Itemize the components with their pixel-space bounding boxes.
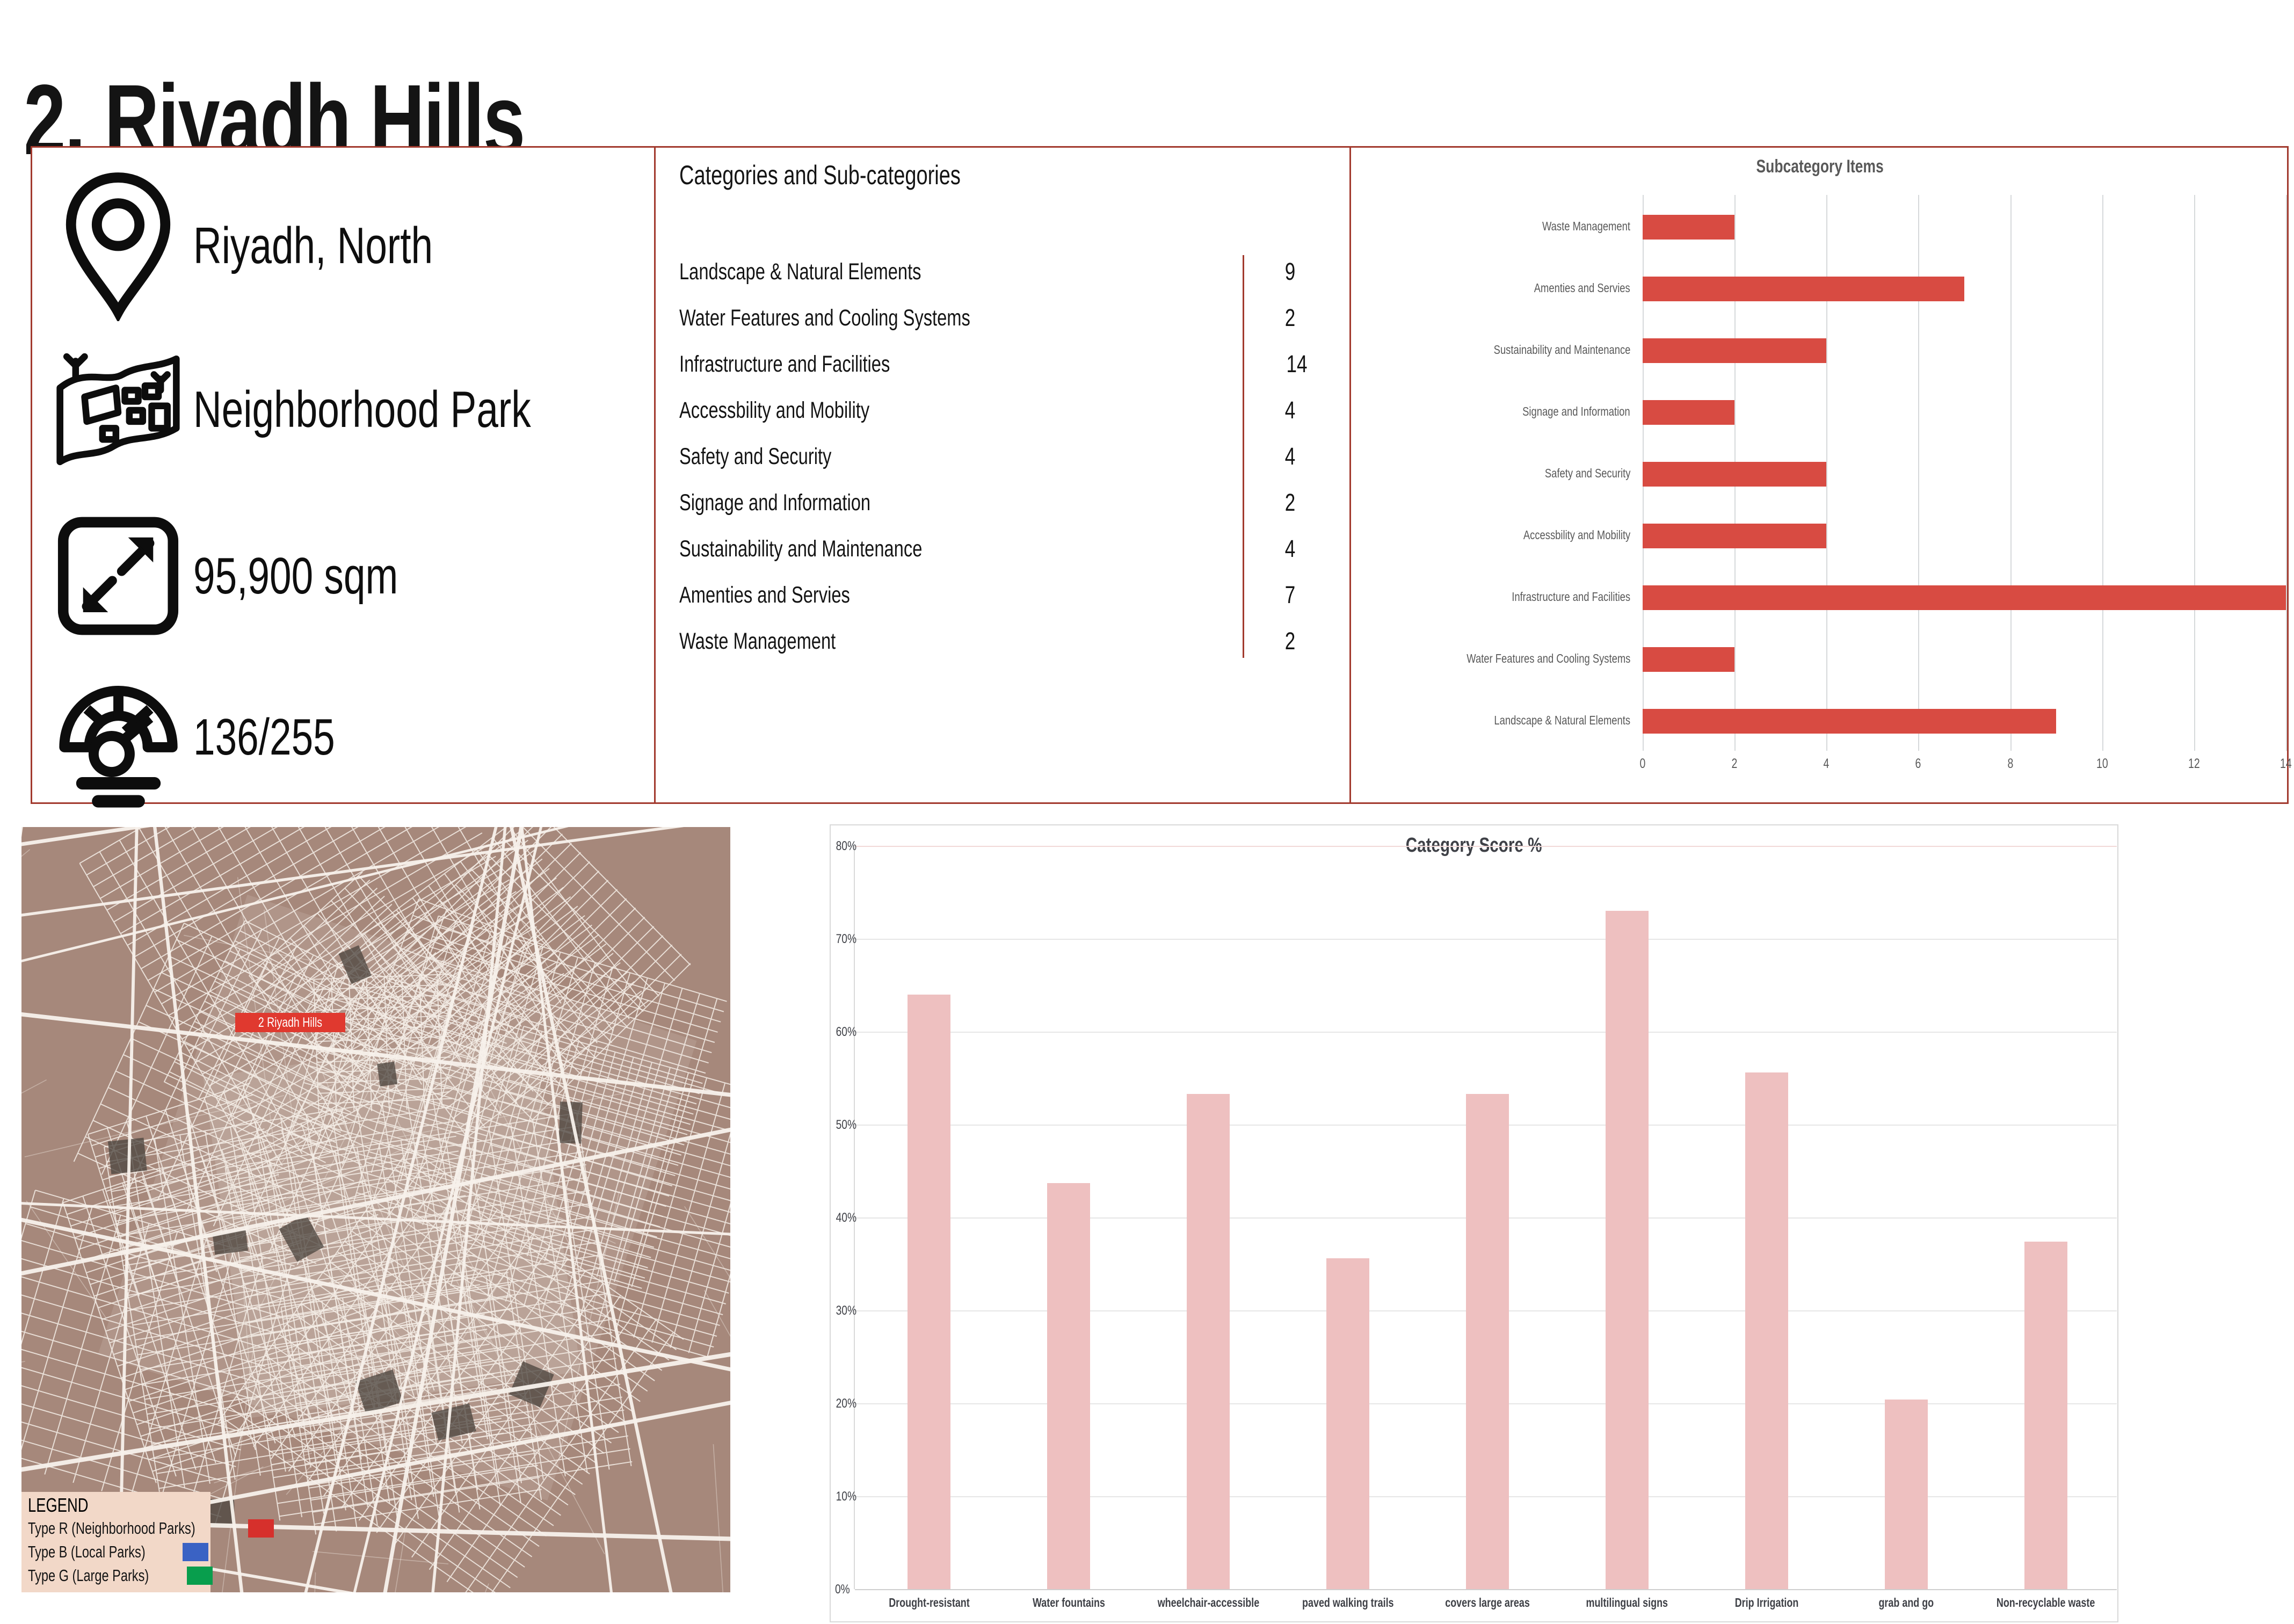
subcategory-x-tick-label-text: 14 bbox=[2280, 756, 2292, 772]
score-gridline bbox=[855, 1589, 2117, 1590]
category-name: Amenties and Servies bbox=[679, 582, 904, 608]
subcategory-bar-label-text: Waste Management bbox=[1542, 219, 1630, 234]
categories-heading: Categories and Sub-categories bbox=[679, 160, 1049, 191]
subcategory-x-tick-label-text: 10 bbox=[2096, 756, 2108, 772]
score-x-label-text: Non-recyclable waste bbox=[1997, 1596, 2095, 1610]
score-bar bbox=[1047, 1183, 1090, 1589]
subcategory-x-tick-label: 6 bbox=[1902, 756, 1934, 772]
category-name: Water Features and Cooling Systems bbox=[679, 305, 1062, 331]
score-bar bbox=[1745, 1072, 1788, 1589]
subcategory-x-tick-label: 10 bbox=[2086, 756, 2118, 772]
riyadh-city-map: 2 Riyadh Hills LEGEND Type R (Neighborho… bbox=[21, 827, 730, 1592]
category-count-text: 2 bbox=[1285, 627, 1296, 655]
map-roads-graphic bbox=[21, 827, 730, 1592]
category-row: Infrastructure and Facilities14 bbox=[679, 341, 1348, 387]
category-count: 7 bbox=[1283, 581, 1297, 609]
location-pin-icon bbox=[43, 171, 193, 321]
category-count-text: 2 bbox=[1285, 489, 1296, 517]
category-name: Waste Management bbox=[679, 628, 885, 655]
subcategory-bar-label: Infrastructure and Facilities bbox=[1351, 590, 1630, 604]
score-y-tick-text: 70% bbox=[836, 932, 856, 947]
subcategory-x-tick-label-text: 0 bbox=[1640, 756, 1646, 772]
category-name-text: Amenties and Servies bbox=[679, 582, 850, 608]
subcategory-bar-label: Landscape & Natural Elements bbox=[1351, 713, 1630, 728]
subcategory-bar-label-text: Infrastructure and Facilities bbox=[1512, 590, 1630, 604]
category-name-text: Accessbility and Mobility bbox=[679, 397, 869, 424]
subcategory-bar bbox=[1643, 709, 2056, 734]
subcategory-bar bbox=[1643, 585, 2286, 610]
score-gridline bbox=[855, 846, 2117, 847]
count-divider bbox=[1243, 255, 1244, 658]
score-x-label-text: Drought-resistant bbox=[889, 1596, 970, 1610]
category-name: Signage and Information bbox=[679, 490, 931, 516]
category-name: Infrastructure and Facilities bbox=[679, 351, 956, 378]
info-row-location: Riyadh, North bbox=[43, 169, 650, 322]
score-x-label: Non-recyclable waste bbox=[1976, 1596, 2116, 1610]
score-y-tick-text: 80% bbox=[836, 839, 856, 854]
legend-label: Type G (Large Parks) bbox=[28, 1566, 187, 1585]
subcategory-bar-label-text: Amenties and Servies bbox=[1534, 281, 1630, 295]
category-count-text: 2 bbox=[1285, 304, 1296, 332]
category-name: Landscape & Natural Elements bbox=[679, 259, 998, 285]
category-row: Waste Management2 bbox=[679, 618, 1348, 664]
subcategory-bar-label-text: Sustainability and Maintenance bbox=[1493, 343, 1630, 357]
info-row-area: 95,900 sqm bbox=[43, 499, 650, 653]
subcategory-gridline bbox=[2102, 195, 2103, 751]
score-x-label: Drip Irrigation bbox=[1697, 1596, 1836, 1610]
category-count: 4 bbox=[1283, 535, 1297, 563]
score-x-label-text: paved walking trails bbox=[1302, 1596, 1394, 1610]
category-count: 9 bbox=[1283, 258, 1297, 286]
score-x-label-text: covers large areas bbox=[1445, 1596, 1530, 1610]
subcategory-gridline bbox=[2010, 195, 2012, 751]
category-name-text: Landscape & Natural Elements bbox=[679, 259, 921, 285]
legend-color-swatch bbox=[183, 1543, 208, 1561]
map-icon bbox=[43, 345, 193, 474]
subcategory-bar-label: Water Features and Cooling Systems bbox=[1351, 651, 1630, 666]
subcategory-bar bbox=[1643, 215, 1734, 240]
score-y-tick-label: 50% bbox=[831, 1118, 850, 1133]
legend-row: Type R (Neighborhood Parks) bbox=[28, 1517, 205, 1540]
category-count-text: 4 bbox=[1285, 443, 1296, 470]
score-x-label-text: multilingual signs bbox=[1586, 1596, 1668, 1610]
subcategory-x-tick-label: 14 bbox=[2270, 756, 2294, 772]
subcategory-x-tick-label-text: 4 bbox=[1824, 756, 1830, 772]
subcategory-bar-label-text: Signage and Information bbox=[1523, 404, 1631, 419]
category-count: 14 bbox=[1283, 350, 1310, 378]
category-count: 2 bbox=[1283, 489, 1297, 517]
score-x-label: grab and go bbox=[1836, 1596, 1976, 1610]
legend-label: Type R (Neighborhood Parks) bbox=[28, 1519, 248, 1538]
legend-color-swatch bbox=[187, 1567, 213, 1585]
legend-label-text: Type B (Local Parks) bbox=[28, 1542, 146, 1562]
info-row-park-type: Neighborhood Park bbox=[43, 333, 650, 486]
category-count-text: 4 bbox=[1285, 396, 1296, 424]
category-name: Sustainability and Maintenance bbox=[679, 536, 999, 562]
park-type-label: Neighborhood Park bbox=[193, 380, 531, 439]
legend-row: Type G (Large Parks) bbox=[28, 1564, 205, 1587]
category-count: 4 bbox=[1283, 443, 1297, 470]
score-gridline bbox=[855, 939, 2117, 940]
score-y-tick-label: 80% bbox=[831, 839, 850, 854]
score-bar bbox=[1466, 1094, 1509, 1589]
gauge-icon bbox=[43, 666, 193, 808]
subcategory-bar-label: Amenties and Servies bbox=[1351, 281, 1630, 295]
score-x-label: covers large areas bbox=[1418, 1596, 1557, 1610]
subcategory-x-tick-label-text: 6 bbox=[1915, 756, 1921, 772]
score-x-label: wheelchair-accessible bbox=[1138, 1596, 1278, 1610]
subcategory-bar-label: Safety and Security bbox=[1351, 466, 1630, 481]
subcategory-bar-label: Signage and Information bbox=[1351, 404, 1630, 419]
summary-panel: Riyadh, North Neighborhood Park bbox=[31, 146, 2289, 804]
subcategory-bar-label-text: Accessbility and Mobility bbox=[1523, 528, 1630, 542]
map-legend: LEGEND Type R (Neighborhood Parks)Type B… bbox=[21, 1492, 210, 1592]
subcategory-gridline bbox=[2286, 195, 2287, 751]
category-name-text: Safety and Security bbox=[679, 444, 831, 470]
subcategory-bar bbox=[1643, 524, 1826, 548]
category-name-text: Water Features and Cooling Systems bbox=[679, 305, 970, 331]
score-x-label-text: Water fountains bbox=[1033, 1596, 1105, 1610]
legend-label: Type B (Local Parks) bbox=[28, 1542, 183, 1562]
score-y-tick-text: 30% bbox=[836, 1303, 856, 1318]
score-x-label-text: grab and go bbox=[1879, 1596, 1934, 1610]
category-count-text: 9 bbox=[1285, 258, 1296, 286]
area-label: 95,900 sqm bbox=[193, 547, 398, 606]
subcategory-bar bbox=[1643, 647, 1734, 672]
subcategory-items-chart: Subcategory Items 02468101214Waste Manag… bbox=[1351, 148, 2289, 802]
score-bar bbox=[1885, 1400, 1928, 1589]
legend-label-text: Type R (Neighborhood Parks) bbox=[28, 1519, 195, 1538]
category-name-text: Infrastructure and Facilities bbox=[679, 351, 890, 378]
score-y-tick-text: 40% bbox=[836, 1210, 856, 1226]
score-bar bbox=[1187, 1094, 1230, 1589]
subcategory-bar-label: Sustainability and Maintenance bbox=[1351, 343, 1630, 357]
score-x-label-text: wheelchair-accessible bbox=[1157, 1596, 1259, 1610]
category-name: Accessbility and Mobility bbox=[679, 397, 930, 424]
score-y-tick-label: 40% bbox=[831, 1210, 850, 1226]
score-y-tick-text: 0% bbox=[835, 1582, 850, 1597]
map-marker-riyadh-hills: 2 Riyadh Hills bbox=[235, 1013, 345, 1032]
category-count: 4 bbox=[1283, 396, 1297, 424]
categories-list: Landscape & Natural Elements9Water Featu… bbox=[679, 249, 1348, 664]
score-y-tick-label: 70% bbox=[831, 932, 850, 947]
score-x-label-text: Drip Irrigation bbox=[1735, 1596, 1799, 1610]
info-row-score: 136/255 bbox=[43, 661, 650, 814]
category-row: Accessbility and Mobility4 bbox=[679, 387, 1348, 433]
score-y-tick-label: 60% bbox=[831, 1025, 850, 1040]
score-bar bbox=[1326, 1258, 1369, 1589]
category-count-text: 7 bbox=[1285, 581, 1296, 609]
category-score-chart: Category Score % 0%10%20%30%40%50%60%70%… bbox=[830, 824, 2118, 1622]
subcategory-bar-label: Accessbility and Mobility bbox=[1351, 528, 1630, 542]
subcategory-bar bbox=[1643, 277, 1964, 301]
score-x-label: Drought-resistant bbox=[859, 1596, 999, 1610]
category-row: Landscape & Natural Elements9 bbox=[679, 249, 1348, 295]
score-y-tick-label: 20% bbox=[831, 1396, 850, 1411]
subcategory-bar-label-text: Water Features and Cooling Systems bbox=[1467, 651, 1630, 666]
subcategory-chart-plot bbox=[1643, 195, 2286, 751]
score-y-tick-label: 30% bbox=[831, 1303, 850, 1318]
panel-divider-1 bbox=[654, 148, 656, 802]
map-legend-title: LEGEND bbox=[28, 1494, 205, 1517]
subcategory-bar bbox=[1643, 462, 1826, 487]
report-page: { "title": "2. Riyadh Hills", "info_pane… bbox=[0, 0, 2294, 1624]
subcategory-bar bbox=[1643, 400, 1734, 425]
category-row: Safety and Security4 bbox=[679, 433, 1348, 480]
score-x-label: paved walking trails bbox=[1278, 1596, 1418, 1610]
category-row: Signage and Information2 bbox=[679, 480, 1348, 526]
score-gridline bbox=[855, 1032, 2117, 1033]
subcategory-x-tick-label: 0 bbox=[1627, 756, 1659, 772]
category-row: Amenties and Servies7 bbox=[679, 572, 1348, 618]
score-y-tick-text: 50% bbox=[836, 1118, 856, 1133]
location-label: Riyadh, North bbox=[193, 216, 433, 275]
score-y-tick-text: 60% bbox=[836, 1025, 856, 1040]
category-name-text: Sustainability and Maintenance bbox=[679, 536, 922, 562]
expand-icon bbox=[43, 513, 193, 639]
score-y-tick-label: 0% bbox=[831, 1582, 850, 1597]
category-name-text: Waste Management bbox=[679, 628, 836, 655]
category-count: 2 bbox=[1283, 627, 1297, 655]
subcategory-gridline bbox=[2194, 195, 2195, 751]
subcategory-bar-label-text: Safety and Security bbox=[1544, 466, 1630, 481]
category-row: Water Features and Cooling Systems2 bbox=[679, 295, 1348, 341]
score-y-tick-text: 10% bbox=[836, 1489, 856, 1504]
subcategory-chart-title: Subcategory Items bbox=[1351, 156, 2289, 177]
category-count-text: 14 bbox=[1287, 350, 1308, 378]
score-x-label: multilingual signs bbox=[1557, 1596, 1697, 1610]
subcategory-x-tick-label-text: 8 bbox=[2007, 756, 2013, 772]
legend-label-text: Type G (Large Parks) bbox=[28, 1566, 149, 1585]
category-name-text: Signage and Information bbox=[679, 490, 870, 516]
score-bar bbox=[2024, 1242, 2067, 1589]
legend-row: Type B (Local Parks) bbox=[28, 1540, 205, 1564]
legend-color-swatch bbox=[248, 1519, 274, 1538]
score-y-tick-text: 20% bbox=[836, 1396, 856, 1411]
score-bar bbox=[1606, 911, 1649, 1589]
category-name: Safety and Security bbox=[679, 444, 880, 470]
score-bar bbox=[908, 995, 950, 1589]
category-row: Sustainability and Maintenance4 bbox=[679, 526, 1348, 572]
subcategory-bar-label-text: Landscape & Natural Elements bbox=[1494, 713, 1630, 728]
subcategory-x-tick-label-text: 12 bbox=[2188, 756, 2200, 772]
subcategory-x-tick-label: 2 bbox=[1718, 756, 1751, 772]
score-label: 136/255 bbox=[193, 708, 335, 767]
subcategory-x-tick-label: 8 bbox=[1994, 756, 2027, 772]
category-count: 2 bbox=[1283, 304, 1297, 332]
subcategory-x-tick-label: 12 bbox=[2178, 756, 2210, 772]
subcategory-bar bbox=[1643, 338, 1826, 363]
category-count-text: 4 bbox=[1285, 535, 1296, 563]
subcategory-x-tick-label-text: 2 bbox=[1732, 756, 1738, 772]
score-y-tick-label: 10% bbox=[831, 1489, 850, 1504]
score-x-label: Water fountains bbox=[999, 1596, 1138, 1610]
map-legend-rows: Type R (Neighborhood Parks)Type B (Local… bbox=[28, 1517, 205, 1587]
subcategory-x-tick-label: 4 bbox=[1810, 756, 1842, 772]
subcategory-bar-label: Waste Management bbox=[1351, 219, 1630, 234]
